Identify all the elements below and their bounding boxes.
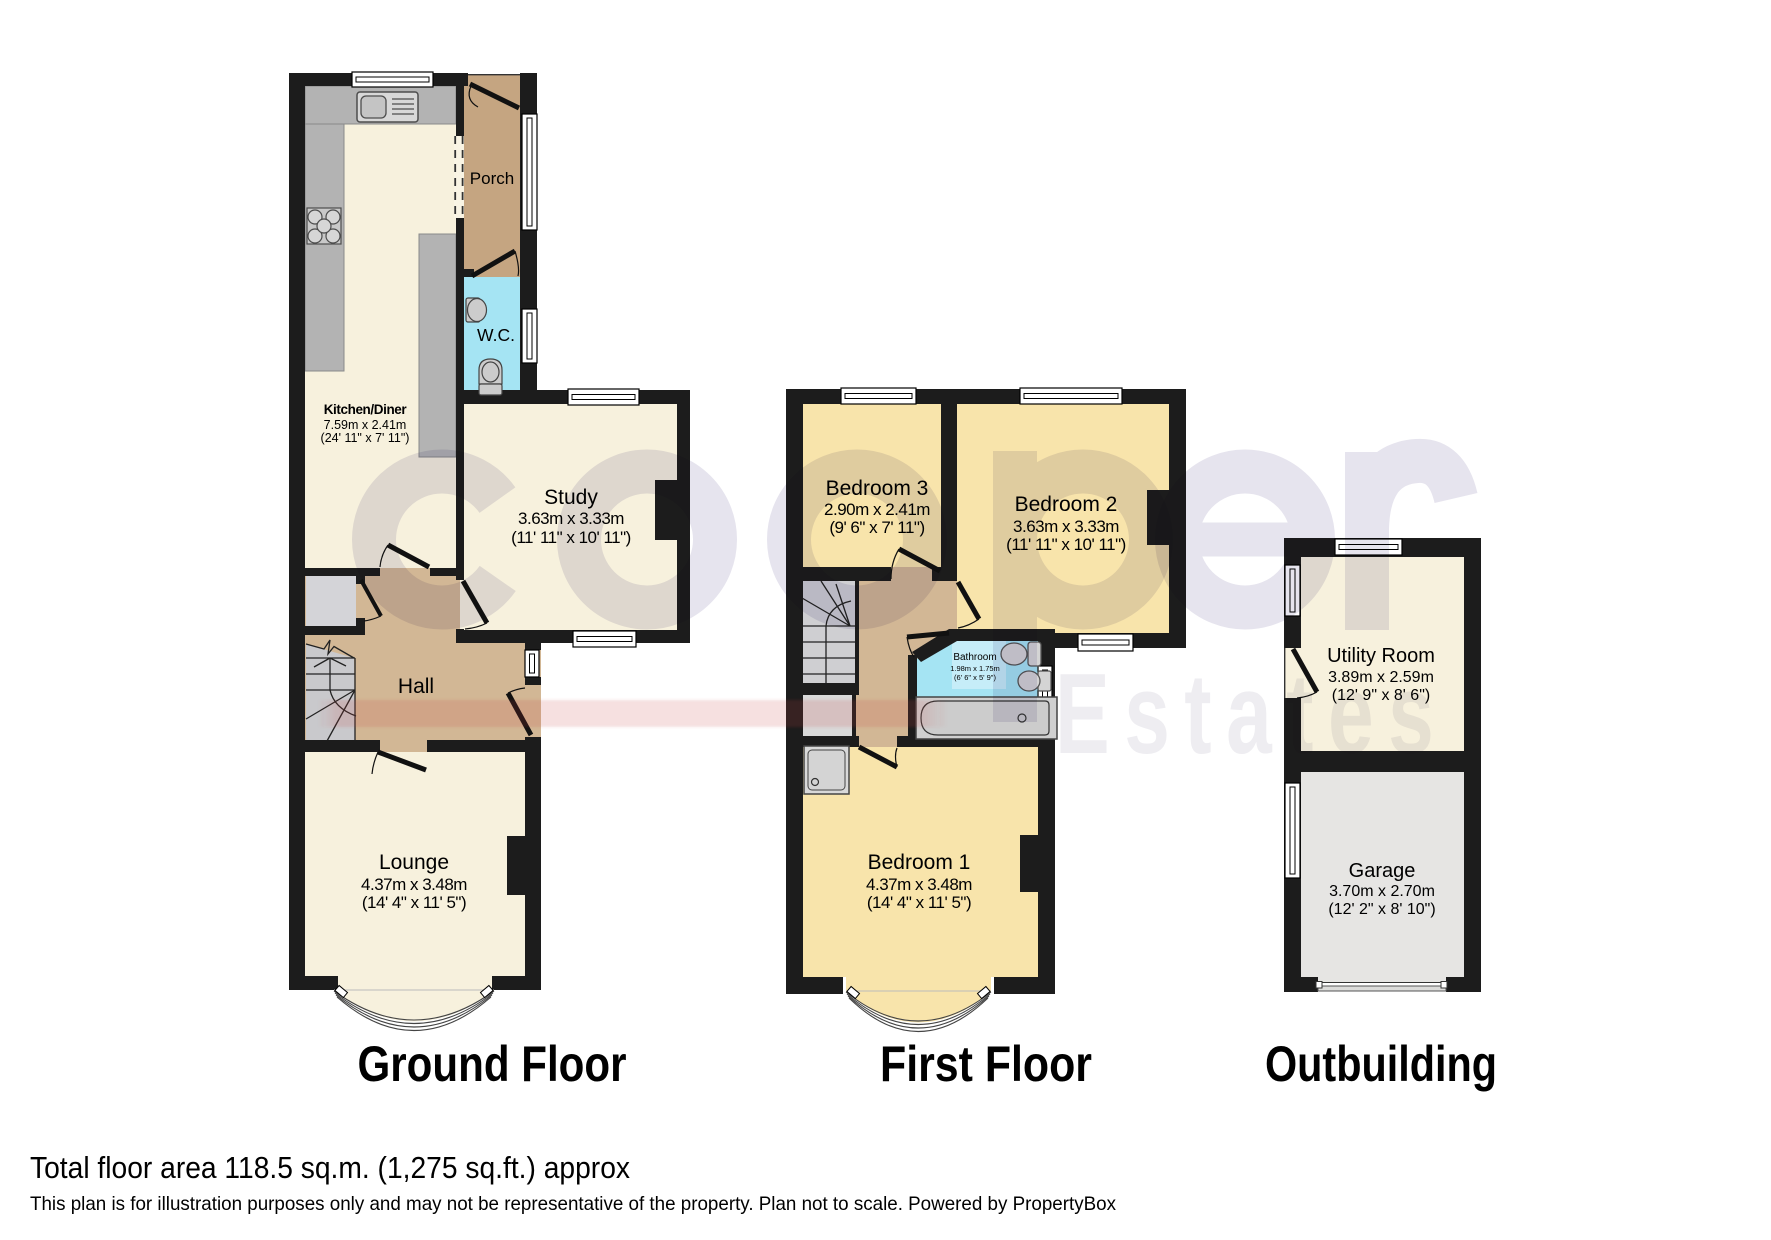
svg-text:Total floor area 118.5 sq.m. (: Total floor area 118.5 sq.m. (1,275 sq.f…	[30, 1151, 630, 1185]
svg-text:4.37m x 3.48m: 4.37m x 3.48m	[866, 875, 972, 894]
svg-text:(12' 2" x 8' 10"): (12' 2" x 8' 10")	[1328, 901, 1435, 918]
svg-text:Hall: Hall	[398, 675, 434, 698]
svg-text:Outbuilding: Outbuilding	[1265, 1036, 1497, 1092]
svg-text:W.C.: W.C.	[477, 325, 515, 345]
svg-text:This plan is for illustration: This plan is for illustration purposes o…	[30, 1193, 1116, 1215]
svg-text:Garage: Garage	[1349, 860, 1416, 882]
svg-text:Bathroom: Bathroom	[953, 652, 996, 663]
svg-text:(6' 6" x 5' 9"): (6' 6" x 5' 9")	[954, 673, 996, 682]
svg-text:Bedroom 1: Bedroom 1	[868, 851, 971, 874]
svg-text:(14' 4" x 11' 5"): (14' 4" x 11' 5")	[362, 893, 466, 912]
svg-text:(14' 4" x 11' 5"): (14' 4" x 11' 5")	[867, 893, 971, 912]
svg-text:3.70m x 2.70m: 3.70m x 2.70m	[1329, 883, 1435, 900]
svg-text:1.98m x 1.75m: 1.98m x 1.75m	[950, 664, 1000, 673]
svg-text:Ground Floor: Ground Floor	[358, 1036, 627, 1092]
svg-text:(24' 11" x 7' 11"): (24' 11" x 7' 11")	[321, 431, 410, 445]
svg-text:First Floor: First Floor	[880, 1036, 1092, 1092]
svg-text:Lounge: Lounge	[379, 851, 449, 874]
svg-text:Porch: Porch	[470, 169, 514, 188]
svg-text:4.37m x 3.48m: 4.37m x 3.48m	[361, 875, 467, 894]
svg-text:7.59m x 2.41m: 7.59m x 2.41m	[324, 418, 407, 432]
svg-text:Kitchen/Diner: Kitchen/Diner	[324, 402, 408, 417]
